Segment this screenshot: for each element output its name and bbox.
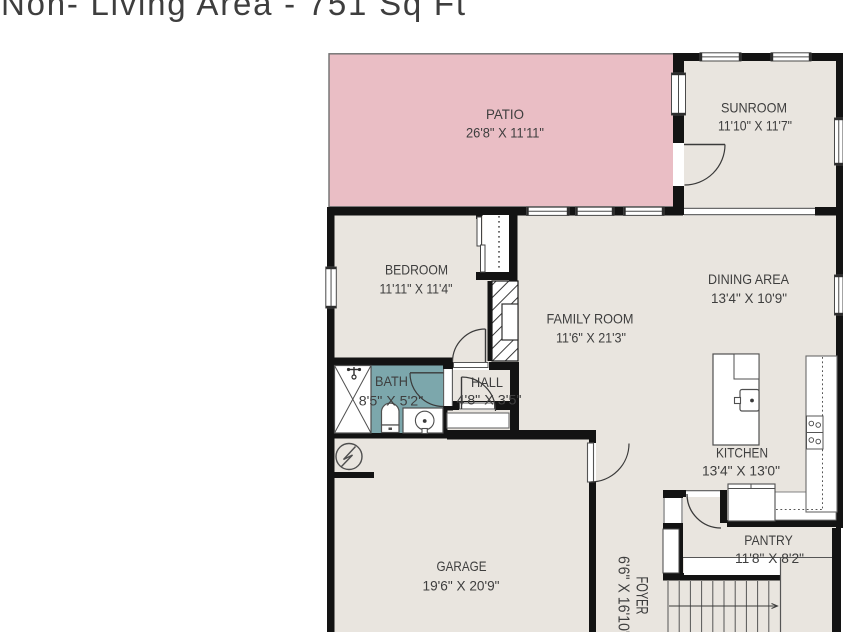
svg-text:4'8" X 3'5": 4'8" X 3'5"	[457, 392, 522, 408]
svg-text:13'4" X 10'9": 13'4" X 10'9"	[711, 290, 787, 306]
svg-text:11'11" X 11'4": 11'11" X 11'4"	[380, 281, 453, 297]
svg-text:DINING AREA: DINING AREA	[708, 271, 790, 287]
svg-text:26'8" X 11'11": 26'8" X 11'11"	[466, 125, 544, 141]
svg-text:FAMILY ROOM: FAMILY ROOM	[547, 311, 634, 327]
svg-text:KITCHEN: KITCHEN	[716, 445, 768, 461]
svg-text:Non- Living Area - 751 Sq Ft: Non- Living Area - 751 Sq Ft	[1, 0, 465, 22]
svg-text:GARAGE: GARAGE	[437, 558, 487, 574]
svg-text:BEDROOM: BEDROOM	[385, 262, 448, 278]
svg-text:PATIO: PATIO	[486, 106, 524, 122]
svg-text:SUNROOM: SUNROOM	[721, 100, 787, 116]
svg-text:PANTRY: PANTRY	[744, 532, 793, 548]
svg-text:11'6" X 21'3": 11'6" X 21'3"	[556, 330, 626, 346]
svg-text:HALL: HALL	[471, 374, 503, 390]
svg-text:13'4" X 13'0": 13'4" X 13'0"	[702, 463, 780, 479]
svg-text:FOYER: FOYER	[633, 577, 652, 615]
svg-text:8'5" X 5'2": 8'5" X 5'2"	[359, 393, 424, 409]
svg-text:19'6" X 20'9": 19'6" X 20'9"	[423, 578, 500, 594]
svg-text:11'8" X 8'2": 11'8" X 8'2"	[735, 550, 804, 566]
svg-text:BATH: BATH	[375, 373, 408, 389]
svg-text:11'10" X 11'7": 11'10" X 11'7"	[718, 118, 792, 134]
svg-text:6'6" X 16'10": 6'6" X 16'10"	[615, 556, 632, 632]
